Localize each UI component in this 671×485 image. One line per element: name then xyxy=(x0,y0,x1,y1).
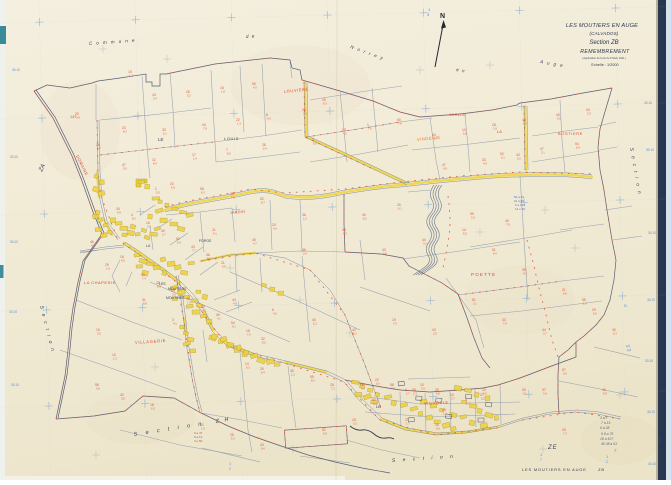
svg-text:55: 55 xyxy=(200,187,204,191)
svg-text:7.0: 7.0 xyxy=(187,301,191,305)
svg-text:4.9: 4.9 xyxy=(233,302,237,306)
svg-text:14: 14 xyxy=(462,228,466,232)
svg-text:51: 51 xyxy=(492,248,496,252)
svg-text:30.10: 30.10 xyxy=(648,462,656,466)
svg-text:1.0: 1.0 xyxy=(443,412,447,416)
svg-text:28: 28 xyxy=(492,123,496,127)
svg-text:3: 3 xyxy=(172,318,174,322)
svg-text:6.5: 6.5 xyxy=(151,407,155,411)
svg-text:6.6: 6.6 xyxy=(222,265,226,269)
svg-text:34: 34 xyxy=(116,207,120,211)
svg-text:40: 40 xyxy=(141,273,145,277)
svg-text:30.10: 30.10 xyxy=(648,231,656,235)
svg-text:7.9: 7.9 xyxy=(391,387,395,391)
svg-text:6.9: 6.9 xyxy=(177,241,181,245)
svg-text:45: 45 xyxy=(252,238,256,242)
svg-text:10: 10 xyxy=(482,388,486,392)
svg-text:47: 47 xyxy=(442,163,446,167)
svg-text:48: 48 xyxy=(186,297,190,301)
svg-text:52: 52 xyxy=(260,197,264,201)
svg-text:1.9: 1.9 xyxy=(583,302,587,306)
svg-text:9.1: 9.1 xyxy=(353,332,357,336)
svg-text:16: 16 xyxy=(146,221,150,225)
svg-text:LA: LA xyxy=(146,244,151,248)
svg-text:6.3: 6.3 xyxy=(466,402,470,406)
svg-text:3.1: 3.1 xyxy=(473,302,477,306)
svg-text:3.4: 3.4 xyxy=(543,392,547,396)
svg-text:30.10: 30.10 xyxy=(10,155,18,159)
svg-text:2.6: 2.6 xyxy=(303,252,307,256)
svg-text:33: 33 xyxy=(482,158,486,162)
svg-text:21: 21 xyxy=(221,261,225,265)
svg-text:1.7: 1.7 xyxy=(406,422,410,426)
svg-text:19: 19 xyxy=(392,318,396,322)
svg-text:27: 27 xyxy=(480,393,484,397)
svg-text:8.7: 8.7 xyxy=(97,147,101,151)
svg-text:18: 18 xyxy=(220,86,224,90)
svg-text:29: 29 xyxy=(105,263,109,267)
svg-text:1.0: 1.0 xyxy=(303,217,307,221)
svg-text:9.9: 9.9 xyxy=(603,392,607,396)
svg-text:30.10: 30.10 xyxy=(11,383,19,387)
svg-text:33: 33 xyxy=(302,108,306,112)
svg-text:6.2: 6.2 xyxy=(517,157,521,161)
svg-text:3.7: 3.7 xyxy=(451,397,455,401)
svg-text:51: 51 xyxy=(472,298,476,302)
svg-text:8.8: 8.8 xyxy=(143,302,147,306)
svg-text:52: 52 xyxy=(322,428,326,432)
svg-text:3.7: 3.7 xyxy=(543,332,547,336)
svg-text:7.1: 7.1 xyxy=(331,387,335,391)
svg-text:1.9: 1.9 xyxy=(106,267,110,271)
svg-text:(CALVADOS): (CALVADOS) xyxy=(589,31,618,36)
svg-text:52: 52 xyxy=(176,237,180,241)
svg-text:26: 26 xyxy=(186,90,190,94)
svg-text:7.5: 7.5 xyxy=(393,322,397,326)
svg-text:26: 26 xyxy=(522,388,526,392)
svg-text:1.4: 1.4 xyxy=(193,157,197,161)
svg-text:3.1: 3.1 xyxy=(541,151,545,155)
svg-text:LOUIS: LOUIS xyxy=(224,136,239,141)
svg-text:2.4: 2.4 xyxy=(303,112,307,116)
svg-text:13: 13 xyxy=(342,128,346,132)
svg-text:8.1: 8.1 xyxy=(132,217,136,221)
svg-text:( Application de la loi du: ( Application de la loi du 9 Mars 1941 ) xyxy=(582,56,626,60)
svg-text:33: 33 xyxy=(162,128,166,132)
svg-text:6.9: 6.9 xyxy=(436,427,440,431)
svg-text:7: 7 xyxy=(226,148,228,152)
svg-text:8.3: 8.3 xyxy=(323,102,327,106)
svg-text:28: 28 xyxy=(96,143,100,147)
svg-text:6: 6 xyxy=(272,308,274,312)
svg-text:N: N xyxy=(440,13,445,20)
svg-text:9.3: 9.3 xyxy=(523,272,527,276)
svg-text:18: 18 xyxy=(150,403,154,407)
svg-text:25: 25 xyxy=(322,98,326,102)
svg-text:9.0: 9.0 xyxy=(563,372,567,376)
svg-text:5.0: 5.0 xyxy=(376,382,380,386)
svg-text:10: 10 xyxy=(420,383,424,387)
svg-text:4.1: 4.1 xyxy=(217,317,221,321)
svg-text:3.9: 3.9 xyxy=(76,116,80,120)
svg-text:JARDIN: JARDIN xyxy=(449,112,466,117)
svg-text:8: 8 xyxy=(266,113,268,117)
svg-text:5.6: 5.6 xyxy=(463,132,467,136)
svg-text:30.10: 30.10 xyxy=(646,148,654,152)
svg-text:47: 47 xyxy=(122,163,126,167)
svg-text:5.2: 5.2 xyxy=(481,397,485,401)
svg-text:6.9: 6.9 xyxy=(563,292,567,296)
svg-text:21: 21 xyxy=(562,288,566,292)
svg-text:Echelle : 1/2000: Echelle : 1/2000 xyxy=(591,63,618,67)
svg-text:17: 17 xyxy=(192,153,196,157)
svg-text:4.3: 4.3 xyxy=(202,309,206,313)
svg-text:7.4: 7.4 xyxy=(142,277,146,281)
svg-text:4.4: 4.4 xyxy=(361,387,365,391)
svg-text:4.6: 4.6 xyxy=(91,244,95,248)
svg-text:2.0: 2.0 xyxy=(433,332,437,336)
svg-text:18: 18 xyxy=(246,329,250,333)
svg-text:44: 44 xyxy=(202,123,206,127)
svg-text:7.8: 7.8 xyxy=(203,127,207,131)
svg-text:7.3: 7.3 xyxy=(563,432,567,436)
svg-text:3.4: 3.4 xyxy=(153,97,157,101)
svg-text:8.4: 8.4 xyxy=(153,162,157,166)
svg-text:LE: LE xyxy=(376,404,381,409)
svg-text:6.9: 6.9 xyxy=(576,146,580,150)
svg-text:LES MOUTIERS EN AUGE: LES MOUTIERS EN AUGE ZB xyxy=(522,467,605,472)
svg-text:35: 35 xyxy=(435,423,439,427)
svg-text:8.2: 8.2 xyxy=(363,217,367,221)
svg-text:ZE: ZE xyxy=(547,445,558,451)
svg-text:30.10: 30.10 xyxy=(645,359,653,363)
svg-text:BOSTIERE: BOSTIERE xyxy=(558,131,583,136)
svg-text:50: 50 xyxy=(372,398,376,402)
svg-text:10: 10 xyxy=(112,353,116,357)
svg-text:43: 43 xyxy=(152,93,156,97)
svg-text:3.2: 3.2 xyxy=(423,242,427,246)
svg-text:1: 1 xyxy=(367,123,369,127)
svg-text:4.1: 4.1 xyxy=(173,322,177,326)
svg-text:43: 43 xyxy=(586,108,590,112)
svg-text:52: 52 xyxy=(500,152,504,156)
svg-text:9.6: 9.6 xyxy=(261,447,265,451)
svg-text:3.5: 3.5 xyxy=(97,332,101,336)
svg-text:5.2: 5.2 xyxy=(523,122,527,126)
svg-text:D: D xyxy=(624,303,627,308)
svg-text:30: 30 xyxy=(612,328,616,332)
svg-text:MOUTIERS: MOUTIERS xyxy=(168,287,187,291)
svg-text:58: 58 xyxy=(390,383,394,387)
svg-text:12: 12 xyxy=(152,158,156,162)
svg-text:14 e 60: 14 e 60 xyxy=(515,207,525,211)
svg-text:LES MOUTIERS EN AUGE: LES MOUTIERS EN AUGE xyxy=(566,23,638,29)
svg-text:46 38 a 61: 46 38 a 61 xyxy=(601,442,617,446)
svg-text:58: 58 xyxy=(95,383,99,387)
svg-text:1: 1 xyxy=(155,187,157,191)
svg-text:5.5: 5.5 xyxy=(156,191,160,195)
svg-text:4: 4 xyxy=(131,213,133,217)
svg-text:1.3: 1.3 xyxy=(113,357,117,361)
svg-text:8.6: 8.6 xyxy=(227,152,231,156)
svg-text:MOUTIERS: MOUTIERS xyxy=(166,296,185,300)
svg-text:32: 32 xyxy=(120,393,124,397)
svg-text:7.6: 7.6 xyxy=(247,333,251,337)
svg-text:15: 15 xyxy=(352,418,356,422)
svg-text:4.2: 4.2 xyxy=(343,132,347,136)
svg-text:13: 13 xyxy=(342,228,346,232)
svg-text:5.0: 5.0 xyxy=(123,167,127,171)
svg-text:37: 37 xyxy=(542,388,546,392)
svg-text:60: 60 xyxy=(397,118,401,122)
svg-text:3 a 7: 3 a 7 xyxy=(600,416,608,420)
svg-text:25: 25 xyxy=(330,383,334,387)
svg-text:6: 6 xyxy=(405,388,407,392)
svg-text:14: 14 xyxy=(245,362,249,366)
svg-text:46: 46 xyxy=(602,388,606,392)
svg-text:7: 7 xyxy=(540,458,542,462)
svg-text:20: 20 xyxy=(397,203,401,207)
svg-text:40: 40 xyxy=(556,113,560,117)
svg-text:LA: LA xyxy=(497,129,502,134)
svg-text:8.4: 8.4 xyxy=(261,371,265,375)
svg-text:28: 28 xyxy=(262,143,266,147)
svg-text:40: 40 xyxy=(362,213,366,217)
svg-text:20: 20 xyxy=(170,182,174,186)
svg-text:1.3: 1.3 xyxy=(129,74,133,78)
svg-text:6.3: 6.3 xyxy=(246,366,250,370)
svg-text:2: 2 xyxy=(229,467,231,471)
svg-text:7.9: 7.9 xyxy=(231,196,235,200)
svg-text:30.10: 30.10 xyxy=(647,298,655,302)
svg-text:18 a 107: 18 a 107 xyxy=(600,437,613,441)
svg-text:1.2: 1.2 xyxy=(291,373,295,377)
svg-text:3.8: 3.8 xyxy=(96,387,100,391)
svg-text:58: 58 xyxy=(412,388,416,392)
svg-text:2: 2 xyxy=(606,460,608,464)
svg-text:8.4: 8.4 xyxy=(493,252,497,256)
svg-text:6.1: 6.1 xyxy=(213,232,217,236)
svg-text:8.6: 8.6 xyxy=(207,257,211,261)
svg-text:6.3: 6.3 xyxy=(201,191,205,195)
svg-text:5.2: 5.2 xyxy=(187,94,191,98)
svg-text:5.8: 5.8 xyxy=(383,252,387,256)
svg-text:6.9: 6.9 xyxy=(117,211,121,215)
svg-text:6 a 28: 6 a 28 xyxy=(600,426,610,430)
svg-text:2.7: 2.7 xyxy=(162,233,166,237)
svg-text:43: 43 xyxy=(516,153,520,157)
svg-text:3.9: 3.9 xyxy=(421,387,425,391)
svg-text:15: 15 xyxy=(128,70,132,74)
svg-text:6.5: 6.5 xyxy=(463,232,467,236)
svg-text:33: 33 xyxy=(502,318,506,322)
svg-text:5.3: 5.3 xyxy=(231,437,235,441)
svg-text:25: 25 xyxy=(230,433,234,437)
svg-text:6.6: 6.6 xyxy=(593,312,597,316)
svg-text:2.6: 2.6 xyxy=(471,216,475,220)
svg-text:147: 147 xyxy=(70,115,76,119)
svg-text:4.3: 4.3 xyxy=(267,117,271,121)
svg-text:9.9: 9.9 xyxy=(323,432,327,436)
svg-text:7.7: 7.7 xyxy=(192,249,196,253)
svg-text:3.8: 3.8 xyxy=(121,397,125,401)
svg-text:4.5: 4.5 xyxy=(121,259,125,263)
svg-text:54: 54 xyxy=(575,142,579,146)
svg-text:54: 54 xyxy=(231,321,235,325)
svg-text:13: 13 xyxy=(462,128,466,132)
svg-text:Section ZB: Section ZB xyxy=(589,40,618,46)
svg-text:d e: d e xyxy=(246,33,256,39)
svg-text:43: 43 xyxy=(522,118,526,122)
svg-text:35: 35 xyxy=(230,192,234,196)
svg-text:2.5: 2.5 xyxy=(587,112,591,116)
svg-text:50: 50 xyxy=(252,82,256,86)
svg-text:9.8: 9.8 xyxy=(436,392,440,396)
svg-text:32: 32 xyxy=(261,337,265,341)
svg-text:57: 57 xyxy=(562,368,566,372)
svg-text:4.1: 4.1 xyxy=(523,392,527,396)
svg-text:1.3: 1.3 xyxy=(237,122,241,126)
svg-text:1.8: 1.8 xyxy=(221,90,225,94)
svg-text:59: 59 xyxy=(470,212,474,216)
svg-text:POETTE: POETTE xyxy=(471,272,496,277)
svg-text:2.5: 2.5 xyxy=(147,225,151,229)
svg-text:5.9: 5.9 xyxy=(171,186,175,190)
svg-text:36: 36 xyxy=(302,213,306,217)
svg-text:39: 39 xyxy=(522,268,526,272)
svg-text:6.1: 6.1 xyxy=(501,156,505,160)
svg-text:9.1: 9.1 xyxy=(232,325,236,329)
svg-text:43: 43 xyxy=(191,245,195,249)
svg-text:7.6: 7.6 xyxy=(368,127,372,131)
svg-text:2.7: 2.7 xyxy=(406,392,410,396)
svg-text:43: 43 xyxy=(382,248,386,252)
svg-text:5.0: 5.0 xyxy=(557,117,561,121)
svg-text:44: 44 xyxy=(422,238,426,242)
svg-text:43: 43 xyxy=(352,328,356,332)
svg-text:20: 20 xyxy=(272,223,276,227)
svg-text:55: 55 xyxy=(582,298,586,302)
svg-text:4.6: 4.6 xyxy=(273,227,277,231)
svg-text:5: 5 xyxy=(465,398,467,402)
svg-text:40: 40 xyxy=(505,219,509,223)
svg-text:9.0: 9.0 xyxy=(262,341,266,345)
svg-text:22: 22 xyxy=(375,378,379,382)
svg-text:6.3: 6.3 xyxy=(613,332,617,336)
svg-text:8.3: 8.3 xyxy=(311,379,315,383)
svg-text:7.8: 7.8 xyxy=(398,122,402,126)
svg-text:8.7: 8.7 xyxy=(261,201,265,205)
svg-text:55: 55 xyxy=(310,375,314,379)
svg-text:6.3: 6.3 xyxy=(343,232,347,236)
svg-text:4.9: 4.9 xyxy=(483,162,487,166)
svg-text:31: 31 xyxy=(142,298,146,302)
svg-text:29: 29 xyxy=(201,305,205,309)
svg-text:9 8 a 75: 9 8 a 75 xyxy=(601,432,613,436)
svg-text:5.2: 5.2 xyxy=(313,322,317,326)
svg-text:2.3: 2.3 xyxy=(413,392,417,396)
svg-text:10: 10 xyxy=(450,393,454,397)
svg-text:4.8: 4.8 xyxy=(443,167,447,171)
svg-text:21: 21 xyxy=(212,228,216,232)
svg-text:30.10: 30.10 xyxy=(644,101,652,105)
svg-text:7.0: 7.0 xyxy=(503,322,507,326)
svg-text:25: 25 xyxy=(435,388,439,392)
svg-text:7 a 15: 7 a 15 xyxy=(601,421,611,425)
svg-text:LE: LE xyxy=(158,137,164,142)
svg-text:30.10: 30.10 xyxy=(647,410,655,414)
svg-text:25: 25 xyxy=(562,428,566,432)
svg-text:36: 36 xyxy=(206,253,210,257)
svg-text:43: 43 xyxy=(260,443,264,447)
svg-text:23: 23 xyxy=(122,126,126,130)
svg-text:5.4: 5.4 xyxy=(263,147,267,151)
svg-text:6.1: 6.1 xyxy=(163,132,167,136)
svg-text:4.0: 4.0 xyxy=(273,312,277,316)
svg-text:47: 47 xyxy=(540,147,544,151)
svg-text:4.7: 4.7 xyxy=(253,242,257,246)
svg-text:15: 15 xyxy=(96,328,100,332)
svg-text:LA CHAPERIE: LA CHAPERIE xyxy=(84,280,116,285)
svg-text:REMEMBREMENT: REMEMBREMENT xyxy=(580,49,630,55)
svg-text:46: 46 xyxy=(90,240,94,244)
svg-text:22: 22 xyxy=(236,118,240,122)
svg-text:44: 44 xyxy=(232,298,236,302)
svg-text:45: 45 xyxy=(442,408,446,412)
svg-text:16: 16 xyxy=(120,255,124,259)
svg-text:25: 25 xyxy=(260,367,264,371)
svg-text:4 e 50: 4 e 50 xyxy=(194,439,203,443)
svg-text:49: 49 xyxy=(216,313,220,317)
svg-text:43: 43 xyxy=(432,328,436,332)
svg-text:36: 36 xyxy=(302,248,306,252)
svg-text:7.8: 7.8 xyxy=(506,223,510,227)
svg-text:6.5: 6.5 xyxy=(313,142,317,146)
svg-text:4.5: 4.5 xyxy=(253,86,257,90)
svg-text:30: 30 xyxy=(161,229,165,233)
svg-text:LES: LES xyxy=(159,282,166,286)
svg-text:30.10: 30.10 xyxy=(10,240,18,244)
svg-text:16: 16 xyxy=(360,383,364,387)
svg-text:30.10: 30.10 xyxy=(12,68,20,72)
svg-text:40: 40 xyxy=(312,318,316,322)
svg-text:30.10: 30.10 xyxy=(9,310,17,314)
svg-text:9.2: 9.2 xyxy=(123,130,127,134)
svg-text:3.2: 3.2 xyxy=(353,422,357,426)
svg-text:FORGE: FORGE xyxy=(199,239,212,243)
svg-text:29: 29 xyxy=(592,308,596,312)
svg-text:44: 44 xyxy=(542,328,546,332)
svg-text:3: 3 xyxy=(312,138,314,142)
svg-text:45: 45 xyxy=(290,369,294,373)
svg-text:6.1: 6.1 xyxy=(398,207,402,211)
svg-text:27: 27 xyxy=(405,418,409,422)
